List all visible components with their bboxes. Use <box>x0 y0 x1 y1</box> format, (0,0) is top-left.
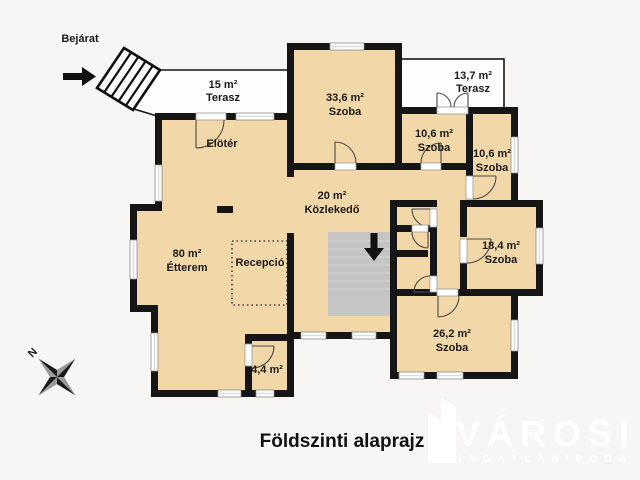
helyiseg-4-4-area: 4,4 m² <box>251 364 283 376</box>
etterem-name: Étterem <box>167 261 208 274</box>
szoba-10-6-b-area: 10,6 m² <box>473 148 511 160</box>
terasz-15-name: Terasz <box>206 92 241 104</box>
recepcio-name: Recepció <box>236 257 285 269</box>
szoba-10-6-b-name: Szoba <box>476 162 509 174</box>
kozlekedo-area: 20 m² <box>318 190 347 202</box>
entrance-label: Bejárat <box>61 33 99 45</box>
watermark-brand: VÁROSI <box>456 413 636 454</box>
floorplan-title: Földszinti alaprajz <box>260 431 425 452</box>
etterem-area: 80 m² <box>173 248 202 260</box>
compass-rose: N <box>10 330 93 413</box>
terasz-15-area: 15 m² <box>209 79 238 91</box>
szoba-26-2-name: Szoba <box>436 342 469 354</box>
terasz-13-7-name: Terasz <box>456 83 491 95</box>
szoba-10-6-a-name: Szoba <box>418 142 451 154</box>
eloter-name: Elötér <box>206 138 238 150</box>
terasz-13-7-area: 13,7 m² <box>454 70 492 82</box>
compass-north-label: N <box>26 346 40 360</box>
entrance-arrow-icon <box>63 67 96 86</box>
floor-plan-canvas: Bejárat 15 m² Terasz 33,6 m² Szoba 13,7 … <box>0 0 640 480</box>
watermark-subtitle: INGATLANIRODA <box>459 454 633 465</box>
watermark-logo-icon <box>428 398 456 463</box>
szoba-18-4-name: Szoba <box>485 254 518 266</box>
floor-plan-drawing: Bejárat 15 m² Terasz 33,6 m² Szoba 13,7 … <box>0 0 640 480</box>
szoba-33-6-name: Szoba <box>329 106 362 118</box>
szoba-26-2-area: 26,2 m² <box>433 328 471 340</box>
szoba-33-6-area: 33,6 m² <box>326 92 364 104</box>
szoba-10-6-a-area: 10,6 m² <box>415 128 453 140</box>
kozlekedo-name: Közlekedő <box>304 204 359 216</box>
staircase <box>328 232 390 316</box>
watermark: VÁROSI INGATLANIRODA <box>428 398 636 465</box>
szoba-18-4-area: 18,4 m² <box>482 240 520 252</box>
